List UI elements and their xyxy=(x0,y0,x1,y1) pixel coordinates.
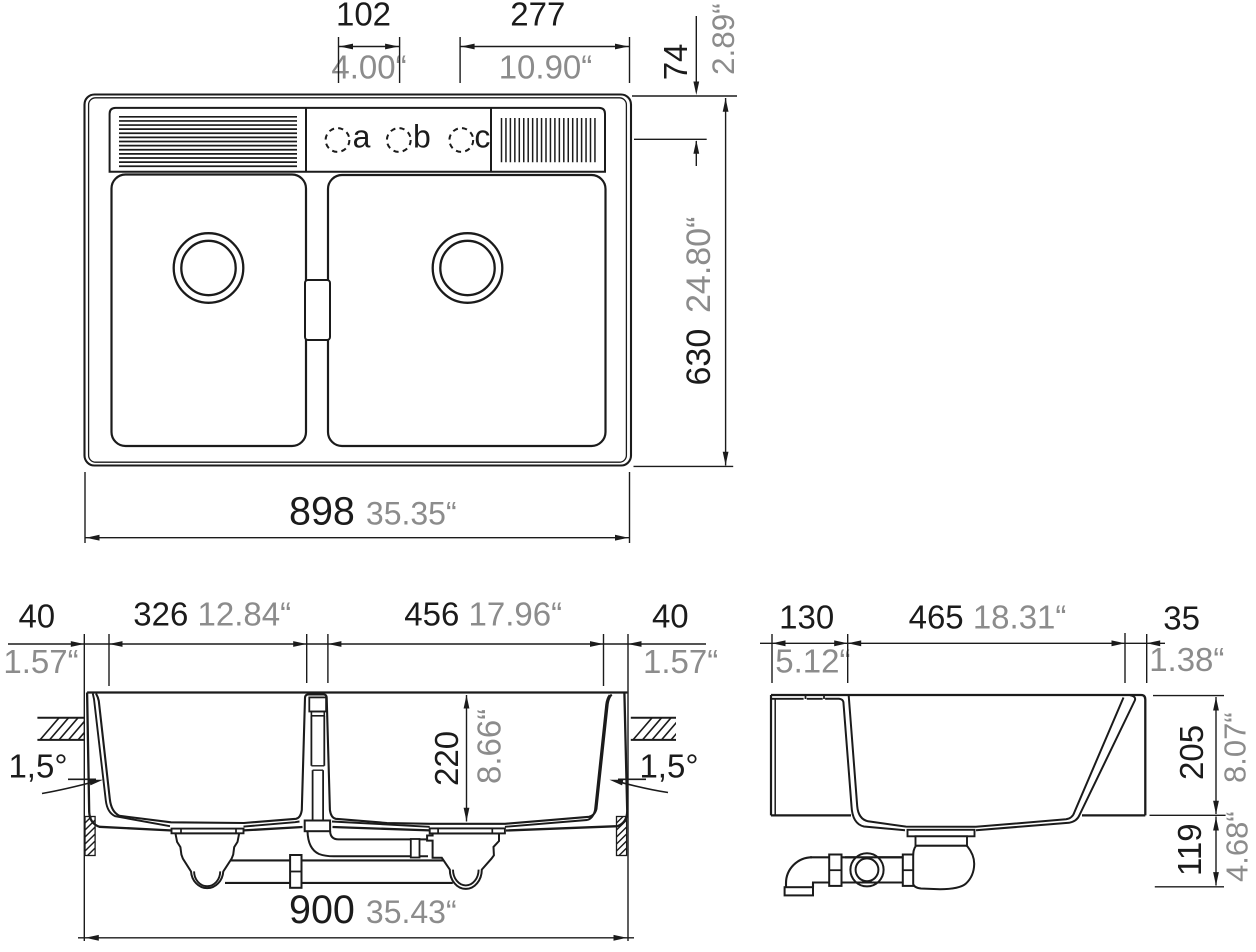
svg-text:465 18.31“: 465 18.31“ xyxy=(909,599,1067,636)
svg-text:b: b xyxy=(413,119,431,155)
svg-text:24.80“: 24.80“ xyxy=(680,217,718,313)
svg-text:119: 119 xyxy=(1171,823,1208,876)
svg-text:630: 630 xyxy=(680,329,718,386)
svg-text:c: c xyxy=(474,119,490,155)
svg-text:10.90“: 10.90“ xyxy=(499,49,593,86)
svg-text:1.57“: 1.57“ xyxy=(3,643,78,680)
svg-text:4.00“: 4.00“ xyxy=(331,49,406,86)
svg-text:74: 74 xyxy=(657,44,694,81)
svg-text:102: 102 xyxy=(336,0,391,33)
svg-text:456 17.96“: 456 17.96“ xyxy=(404,596,562,633)
svg-text:205: 205 xyxy=(1173,725,1210,780)
svg-text:1.38“: 1.38“ xyxy=(1149,641,1224,678)
svg-text:40: 40 xyxy=(652,598,689,635)
svg-text:35: 35 xyxy=(1163,600,1200,637)
svg-text:a: a xyxy=(353,119,371,155)
svg-text:220: 220 xyxy=(428,731,465,786)
svg-text:1,5°: 1,5° xyxy=(639,748,698,785)
svg-text:277: 277 xyxy=(510,0,565,33)
svg-text:2.89“: 2.89“ xyxy=(705,3,741,75)
svg-text:1.57“: 1.57“ xyxy=(643,643,718,680)
svg-text:898 35.35“: 898 35.35“ xyxy=(289,490,457,534)
svg-text:900 35.43“: 900 35.43“ xyxy=(289,888,457,932)
svg-text:326 12.84“: 326 12.84“ xyxy=(133,596,291,633)
svg-text:130: 130 xyxy=(779,599,834,636)
svg-text:8.07“: 8.07“ xyxy=(1218,712,1253,783)
svg-text:4.68“: 4.68“ xyxy=(1220,811,1255,882)
svg-text:1,5°: 1,5° xyxy=(8,748,67,785)
svg-text:5.12“: 5.12“ xyxy=(775,643,850,680)
svg-text:40: 40 xyxy=(18,598,55,635)
svg-text:8.66“: 8.66“ xyxy=(471,709,508,784)
